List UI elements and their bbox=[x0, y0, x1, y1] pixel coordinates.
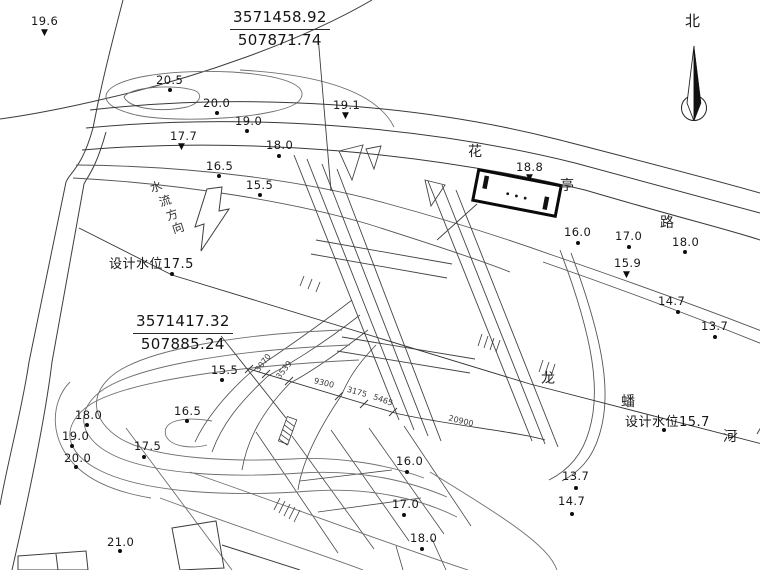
north-label: 北 bbox=[685, 10, 700, 31]
downstream-fan bbox=[256, 426, 471, 570]
flow-arrow bbox=[195, 187, 229, 251]
bridge-symbol bbox=[473, 170, 561, 216]
northing-value: 3571417.32 bbox=[133, 312, 233, 334]
plan-linework bbox=[0, 0, 760, 570]
north-arrow-icon bbox=[682, 46, 707, 121]
easting-value: 507885.24 bbox=[133, 334, 233, 355]
coordinate-callout-south: 3571417.32 507885.24 bbox=[133, 312, 233, 354]
northing-value: 3571458.92 bbox=[230, 8, 330, 30]
site-plan-canvas: 19.6▼20.520.019.017.7▼18.016.515.519.1▼1… bbox=[0, 0, 760, 570]
leader-lines bbox=[221, 36, 331, 418]
contour-oval bbox=[106, 70, 394, 127]
easting-value: 507871.74 bbox=[230, 30, 330, 51]
coordinate-callout-north: 3571458.92 507871.74 bbox=[230, 8, 330, 50]
contour-bend bbox=[55, 330, 557, 570]
boundary-lines bbox=[0, 0, 372, 570]
road-lines bbox=[82, 102, 760, 240]
buildings bbox=[18, 521, 300, 570]
